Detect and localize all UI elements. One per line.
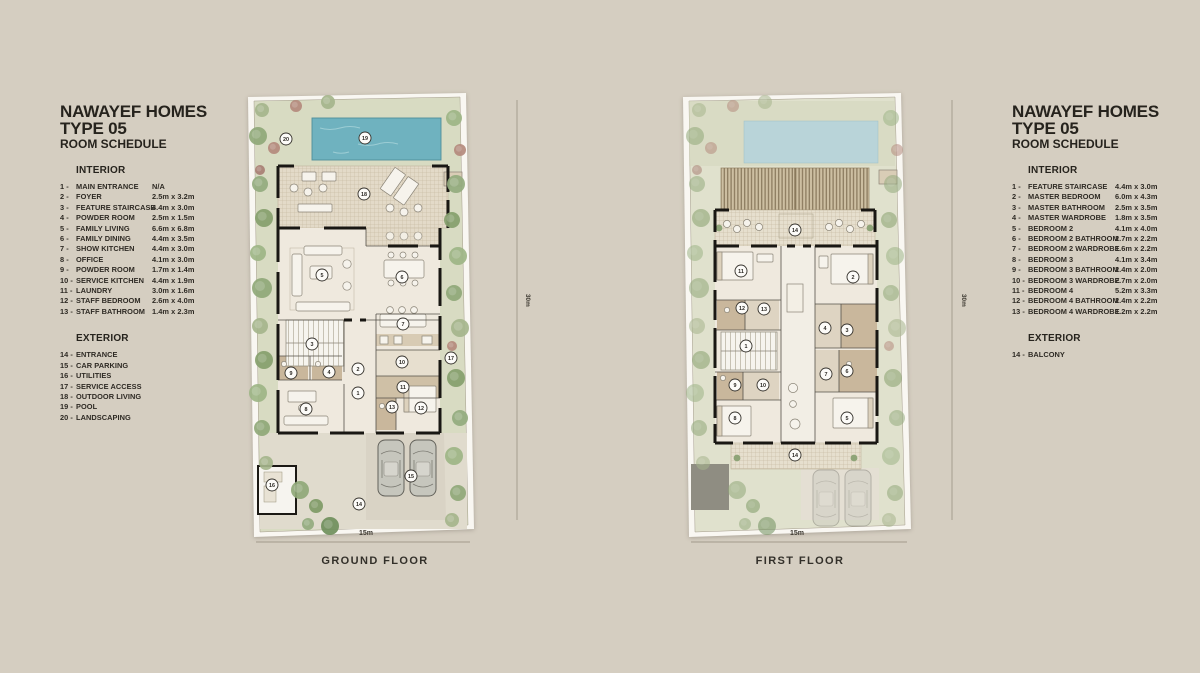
title-line1: NAWAYEF HOMES [1012,103,1200,120]
schedule-row: 13 -BEDROOM 4 WARDROBE1.2m x 2.2m [1012,307,1200,317]
schedule-row: 5 -BEDROOM 24.1m x 4.0m [1012,224,1200,234]
svg-text:18: 18 [361,192,367,198]
schedule-row: 7 -BEDROOM 2 WARDROBE1.6m x 2.2m [1012,244,1200,254]
svg-text:20: 20 [283,137,289,143]
interior-list: 1 -FEATURE STAIRCASE4.4m x 3.0m2 -MASTER… [1012,182,1200,317]
room-marker-12: 12 [736,302,748,314]
height-dimension-label: 30m [960,294,967,307]
room-marker-12: 12 [415,402,427,414]
schedule-row: 11 -LAUNDRY3.0m x 1.6m [60,286,260,296]
car [378,440,404,496]
svg-text:7: 7 [402,322,405,328]
schedule-row: 18 -OUTDOOR LIVING [60,392,260,402]
exterior-list: 14 -BALCONY [1012,350,1200,360]
room-marker-9: 9 [729,379,741,391]
svg-text:14: 14 [356,502,362,508]
hallway [781,246,815,443]
svg-text:3: 3 [311,342,314,348]
page-title: NAWAYEF HOMES TYPE 05 [1012,103,1200,137]
schedule-row: 13 -STAFF BATHROOM1.4m x 2.3m [60,307,260,317]
svg-text:10: 10 [760,383,766,389]
schedule-row: 2 -MASTER BEDROOM6.0m x 4.3m [1012,192,1200,202]
room-marker-17: 17 [445,352,457,364]
schedule-row: 7 -SHOW KITCHEN4.4m x 3.0m [60,244,260,254]
room-marker-18: 18 [358,188,370,200]
svg-text:9: 9 [290,371,293,377]
width-dimension-label: 15m [790,530,804,537]
svg-text:1: 1 [357,391,360,397]
room-schedule-first: NAWAYEF HOMES TYPE 05 ROOM SCHEDULE INTE… [1012,103,1200,361]
svg-text:5: 5 [321,273,324,279]
room-marker-8: 8 [300,403,312,415]
svg-text:14: 14 [792,228,798,234]
room-marker-10: 10 [757,379,769,391]
svg-text:2: 2 [357,367,360,373]
svg-text:7: 7 [825,372,828,378]
schedule-row: 15 -CAR PARKING [60,361,260,371]
ground-floor-plan: 30m 15m 2019185673942110111312817161514 [238,88,538,558]
svg-text:6: 6 [846,369,849,375]
schedule-row: 9 -BEDROOM 3 BATHROOM2.4m x 2.0m [1012,265,1200,275]
schedule-row: 14 -ENTRANCE [60,350,260,360]
schedule-row: 3 -FEATURE STAIRCASE4.4m x 3.0m [60,203,260,213]
schedule-row: 1 -MAIN ENTRANCEN/A [60,182,260,192]
svg-text:11: 11 [400,385,406,391]
room-marker-13: 13 [758,303,770,315]
pool-below [744,121,878,163]
ground-floor-caption: GROUND FLOOR [238,555,512,567]
room-schedule-ground: NAWAYEF HOMES TYPE 05 ROOM SCHEDULE INTE… [60,103,260,423]
schedule-row: 12 -STAFF BEDROOM2.6m x 4.0m [60,296,260,306]
schedule-row: 3 -MASTER BATHROOM2.5m x 3.5m [1012,203,1200,213]
room-marker-11: 11 [735,265,747,277]
svg-text:4: 4 [824,326,827,332]
room-marker-14: 14 [789,449,801,461]
width-dimension-label: 15m [359,530,373,537]
room-marker-1: 1 [352,387,364,399]
schedule-row: 8 -BEDROOM 34.1m x 3.4m [1012,255,1200,265]
svg-text:15: 15 [408,474,414,480]
room-marker-10: 10 [396,356,408,368]
room-marker-11: 11 [397,381,409,393]
svg-text:6: 6 [401,275,404,281]
room-marker-3: 3 [306,338,318,350]
page-title: NAWAYEF HOMES TYPE 05 [60,103,260,137]
schedule-row: 12 -BEDROOM 4 BATHROOM2.4m x 2.2m [1012,296,1200,306]
interior-list: 1 -MAIN ENTRANCEN/A2 -FOYER2.5m x 3.2m3 … [60,182,260,317]
room-marker-6: 6 [841,365,853,377]
svg-text:14: 14 [792,453,798,459]
svg-text:17: 17 [448,356,454,362]
schedule-row: 16 -UTILITIES [60,371,260,381]
exterior-heading: EXTERIOR [1028,333,1200,344]
exterior-list: 14 -ENTRANCE15 -CAR PARKING16 -UTILITIES… [60,350,260,423]
room-marker-5: 5 [316,269,328,281]
schedule-row: 4 -POWDER ROOM2.5m x 1.5m [60,213,260,223]
svg-text:8: 8 [305,407,308,413]
schedule-row: 9 -POWDER ROOM1.7m x 1.4m [60,265,260,275]
svg-text:13: 13 [761,307,767,313]
svg-text:12: 12 [418,406,424,412]
subtitle: ROOM SCHEDULE [60,138,260,151]
schedule-row: 14 -BALCONY [1012,350,1200,360]
svg-text:19: 19 [362,136,368,142]
room-marker-13: 13 [386,401,398,413]
svg-text:9: 9 [734,383,737,389]
title-line2: TYPE 05 [1012,120,1200,137]
title-line2: TYPE 05 [60,120,260,137]
room-marker-15: 15 [405,470,417,482]
svg-text:16: 16 [269,483,275,489]
room-marker-4: 4 [323,366,335,378]
room-marker-1: 1 [740,340,752,352]
schedule-row: 11 -BEDROOM 45.2m x 3.3m [1012,286,1200,296]
schedule-row: 4 -MASTER WARDROBE1.8m x 3.5m [1012,213,1200,223]
svg-text:12: 12 [739,306,745,312]
room-marker-2: 2 [352,363,364,375]
room-marker-3: 3 [841,324,853,336]
title-line1: NAWAYEF HOMES [60,103,260,120]
room-marker-2: 2 [847,271,859,283]
schedule-row: 8 -OFFICE4.1m x 3.0m [60,255,260,265]
interior-heading: INTERIOR [1028,165,1200,176]
svg-text:2: 2 [852,275,855,281]
schedule-row: 6 -FAMILY DINING4.4m x 3.5m [60,234,260,244]
room-marker-7: 7 [820,368,832,380]
svg-text:4: 4 [328,370,331,376]
room-marker-9: 9 [285,367,297,379]
interior-heading: INTERIOR [76,165,260,176]
room-marker-5: 5 [841,412,853,424]
height-dimension-label: 30m [524,294,531,307]
schedule-row: 6 -BEDROOM 2 BATHROOM2.7m x 2.2m [1012,234,1200,244]
svg-text:10: 10 [399,360,405,366]
schedule-row: 5 -FAMILY LIVING6.6m x 6.8m [60,224,260,234]
car [410,440,436,496]
first-floor-plan: 30m 15m 141121213431910768514 [675,88,975,558]
svg-text:11: 11 [738,269,744,275]
schedule-row: 19 -POOL [60,402,260,412]
terrace-furniture [386,232,422,240]
room-marker-19: 19 [359,132,371,144]
room-marker-6: 6 [396,271,408,283]
room-marker-7: 7 [397,318,409,330]
schedule-row: 10 -SERVICE KITCHEN4.4m x 1.9m [60,276,260,286]
schedule-row: 2 -FOYER2.5m x 3.2m [60,192,260,202]
room-marker-14: 14 [789,224,801,236]
schedule-row: 10 -BEDROOM 3 WARDROBE2.7m x 2.0m [1012,276,1200,286]
svg-text:3: 3 [846,328,849,334]
first-floor-caption: FIRST FLOOR [675,555,925,567]
room-marker-8: 8 [729,412,741,424]
shadow-block [691,464,729,510]
schedule-row: 20 -LANDSCAPING [60,413,260,423]
room-marker-16: 16 [266,479,278,491]
room-marker-20: 20 [280,133,292,145]
schedule-row: 17 -SERVICE ACCESS [60,382,260,392]
svg-text:8: 8 [734,416,737,422]
room-marker-4: 4 [819,322,831,334]
exterior-heading: EXTERIOR [76,333,260,344]
room-marker-14: 14 [353,498,365,510]
subtitle: ROOM SCHEDULE [1012,138,1200,151]
svg-text:1: 1 [745,344,748,350]
schedule-row: 1 -FEATURE STAIRCASE4.4m x 3.0m [1012,182,1200,192]
svg-text:13: 13 [389,405,395,411]
brochure-page: NAWAYEF HOMES TYPE 05 ROOM SCHEDULE INTE… [0,0,1200,673]
pool [312,118,441,160]
svg-text:5: 5 [846,416,849,422]
